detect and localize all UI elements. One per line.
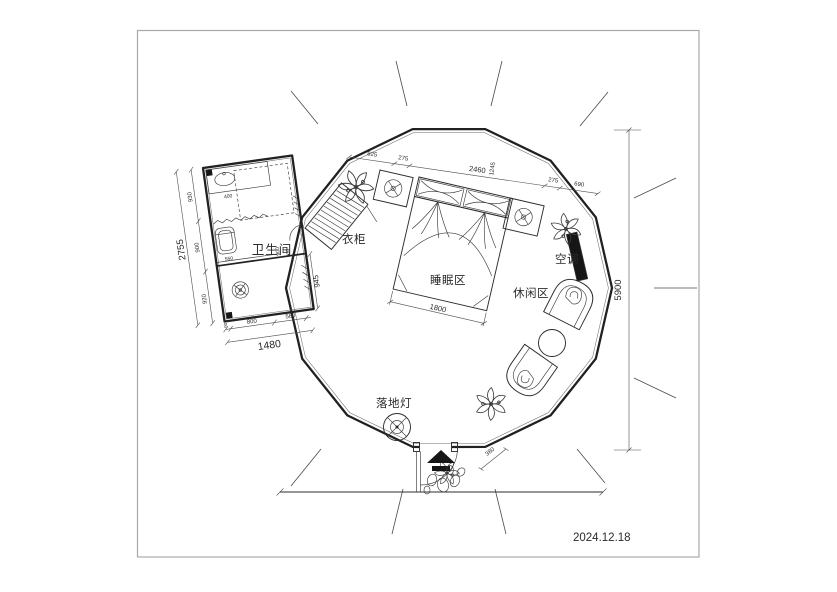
label-wardrobe: 衣柜 xyxy=(342,232,366,246)
label-leisure-area: 休闲区 xyxy=(513,286,549,300)
floor-plan-canvas: 825 275 2460 1245 275 690 5900 1800 睡眠区 xyxy=(0,0,837,592)
dim-toilet: 550 xyxy=(224,256,233,263)
floor-plan-page: 825 275 2460 1245 275 690 5900 1800 睡眠区 xyxy=(0,0,837,592)
dim-bath-right-text: 945 xyxy=(311,275,322,289)
dim-vanity: 400 xyxy=(224,193,233,200)
column-marker xyxy=(226,312,233,319)
label-air-conditioner: 空调 xyxy=(555,252,579,266)
label-bathroom: 卫生间 xyxy=(252,243,293,257)
label-sleeping-area: 睡眠区 xyxy=(430,274,466,287)
label-floor-lamp: 落地灯 xyxy=(376,397,412,410)
drawing-date: 2024.12.18 xyxy=(573,532,631,544)
dim-overall-height-text: 5900 xyxy=(613,279,624,300)
